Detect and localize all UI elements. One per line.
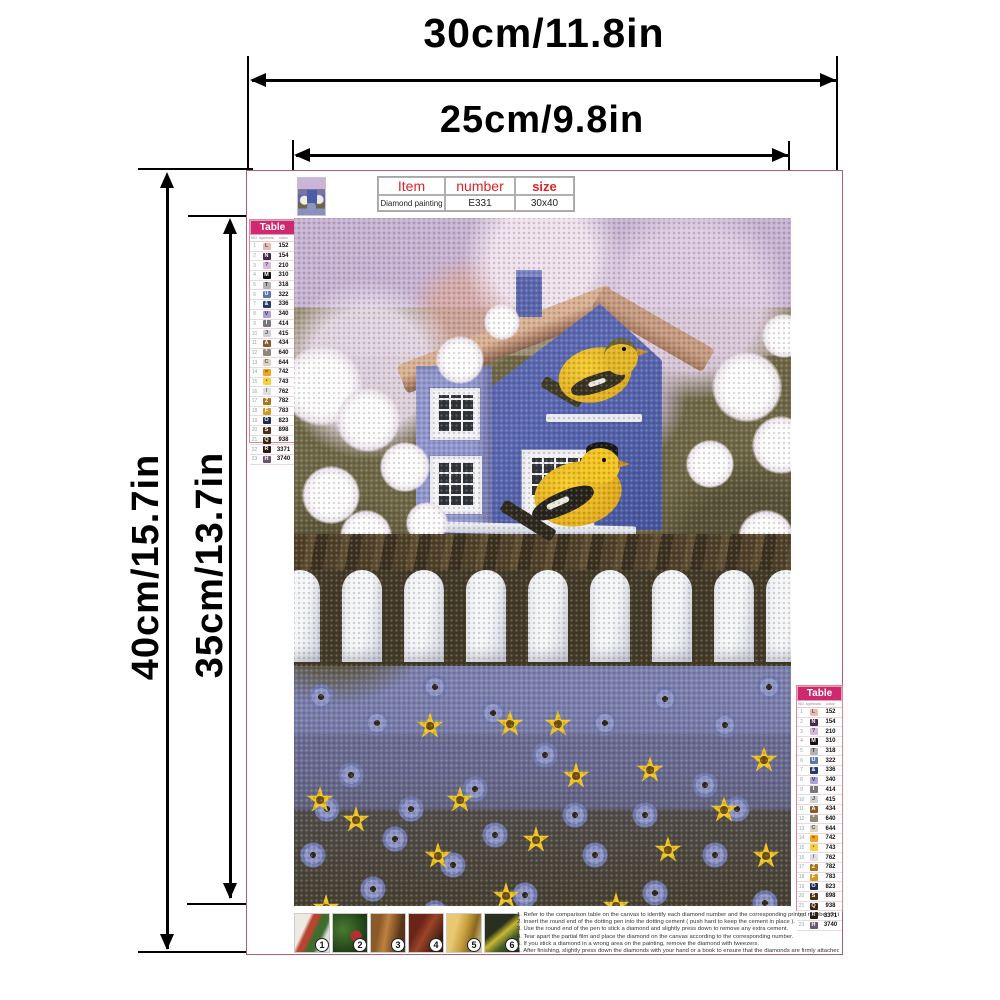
- symbol-chip: •: [263, 378, 271, 385]
- arrowhead-down-icon: [160, 934, 174, 950]
- step-number-badge: 5: [467, 938, 481, 952]
- symbol-chip: N: [263, 253, 271, 260]
- dmc-code: 782: [274, 398, 293, 404]
- instruction-line: 6. After finishing, slightly press down …: [517, 948, 839, 955]
- dmc-code: 783: [821, 874, 840, 880]
- instruction-line: 1. Refer to the comparison table on the …: [517, 912, 839, 919]
- color-table-title: Table: [250, 220, 295, 235]
- row-number: 6: [250, 292, 259, 298]
- dogwood-blossom: [712, 352, 782, 422]
- symbol-chip: R: [263, 446, 271, 453]
- symbol-chip: &: [263, 301, 271, 308]
- row-number: 13: [250, 360, 259, 366]
- product-size-sheet: 30cm/11.8in 25cm/9.8in 40cm/15.7in 35cm/…: [0, 0, 1000, 1000]
- color-table-row: 13C644: [797, 824, 842, 834]
- arrowhead-left-icon: [250, 73, 266, 87]
- step-image-1: 1: [294, 913, 330, 953]
- symbol-chip: J: [810, 796, 818, 803]
- step-images: 123456: [294, 913, 520, 951]
- dmc-code: 823: [274, 418, 293, 424]
- instruction-line: 5. If you stick a diamond in a wrong are…: [517, 941, 839, 948]
- color-table-row: 17Z782: [250, 397, 295, 407]
- row-number: 17: [250, 398, 259, 404]
- symbol-chip: Z: [263, 398, 271, 405]
- step-image-6: 6: [484, 913, 520, 953]
- bird-eye: [622, 347, 626, 351]
- dmc-code: 762: [274, 389, 293, 395]
- arrowhead-left-icon: [294, 148, 310, 162]
- color-table-row: 9I414: [250, 320, 295, 330]
- yellow-flower: [602, 892, 630, 906]
- yellow-flower: [372, 904, 400, 906]
- bird-beak: [637, 348, 649, 356]
- row-number: 20: [797, 893, 806, 899]
- color-table-row: 5T318: [250, 281, 295, 291]
- row-number: 16: [797, 855, 806, 861]
- symbol-chip: /: [810, 854, 818, 861]
- color-table-row: 19O823: [797, 882, 842, 892]
- print-height-label: 35cm/13.7in: [188, 415, 232, 715]
- dmc-code: 340: [821, 777, 840, 783]
- color-table-row: 3?210: [797, 727, 842, 737]
- color-table-row: 1L152: [797, 708, 842, 718]
- purple-aster-flower: [752, 890, 778, 906]
- color-table-row: 18F783: [797, 873, 842, 883]
- purple-aster-flower: [702, 842, 728, 868]
- yellow-flower: [562, 762, 590, 790]
- symbol-chip: I: [263, 320, 271, 327]
- fence-picket: [766, 570, 791, 662]
- color-table-row: 11A434: [250, 339, 295, 349]
- total-height-arrow-line: [166, 177, 169, 949]
- row-number: 9: [797, 787, 806, 793]
- yellow-flower: [312, 894, 340, 906]
- dmc-code: 3371: [274, 447, 293, 453]
- step-number-badge: 1: [315, 938, 329, 952]
- dogwood-blossom: [336, 388, 400, 452]
- total-height-label: 40cm/15.7in: [124, 417, 168, 717]
- row-number: 17: [797, 864, 806, 870]
- dmc-code: 310: [821, 738, 840, 744]
- dmc-code: 310: [274, 272, 293, 278]
- step-image-2: 2: [332, 913, 368, 953]
- total-width-arrow-line: [252, 79, 836, 82]
- yellow-flower: [672, 904, 700, 906]
- color-table-right: Table NO. symbols color 1L1522N1543?2104…: [796, 685, 843, 911]
- color-table-row: 3?210: [250, 261, 295, 271]
- arrowhead-down-icon: [223, 883, 237, 899]
- size-value: 30x40: [515, 195, 574, 211]
- goldfinch-upper: [542, 334, 652, 422]
- row-number: 5: [797, 748, 806, 754]
- symbol-chip: O: [810, 883, 818, 890]
- dmc-code: 640: [274, 350, 293, 356]
- color-table-row: 1L152: [250, 242, 295, 252]
- color-table-row: 11A434: [797, 805, 842, 815]
- arrowhead-up-icon: [223, 218, 237, 234]
- col-color: color: [274, 235, 293, 241]
- dmc-code: 743: [274, 379, 293, 385]
- dmc-code: 434: [821, 806, 840, 812]
- purple-aster-flower: [382, 826, 408, 852]
- purple-aster-flower: [364, 710, 390, 736]
- row-number: 23: [250, 456, 259, 462]
- dmc-code: 336: [821, 767, 840, 773]
- dmc-code: 414: [821, 787, 840, 793]
- symbol-chip: N: [810, 719, 818, 726]
- symbol-chip: U: [810, 757, 818, 764]
- symbol-chip: ?: [263, 262, 271, 269]
- arrowhead-right-icon: [772, 148, 788, 162]
- color-table-columns: NO. symbols color: [250, 235, 295, 242]
- color-table-row: 21Q938: [797, 902, 842, 912]
- col-no: NO.: [250, 235, 259, 241]
- yellow-flower: [522, 826, 550, 854]
- bird-beak: [618, 460, 630, 468]
- symbol-chip: C: [810, 825, 818, 832]
- row-number: 11: [797, 806, 806, 812]
- color-table-row: 14=742: [797, 834, 842, 844]
- color-table-row: 21Q938: [250, 436, 295, 446]
- dmc-code: 152: [274, 243, 293, 249]
- symbol-chip: V: [810, 777, 818, 784]
- symbol-chip: Z: [810, 864, 818, 871]
- purple-aster-flower: [582, 842, 608, 868]
- row-number: 14: [797, 835, 806, 841]
- color-table-row: 10J415: [250, 329, 295, 339]
- color-table-row: 12*640: [250, 349, 295, 359]
- purple-aster-flower: [562, 802, 588, 828]
- bird-head: [604, 338, 638, 375]
- yellow-flower: [654, 836, 682, 864]
- yellow-flower: [342, 806, 370, 834]
- purple-aster-flower: [360, 876, 386, 902]
- row-number: 2: [250, 253, 259, 259]
- window-panes: [437, 395, 473, 433]
- print-width-arrow-line: [296, 154, 788, 157]
- fence-row: [294, 570, 791, 666]
- symbol-chip: H: [263, 456, 271, 463]
- item-info-table: Item number size Diamond painting E331 3…: [377, 176, 575, 212]
- color-table-row: 2N154: [797, 718, 842, 728]
- dmc-code: 434: [274, 340, 293, 346]
- arrowhead-up-icon: [160, 172, 174, 188]
- step-number-badge: 3: [391, 938, 405, 952]
- col-symbols: symbols: [806, 701, 821, 707]
- row-number: 7: [797, 767, 806, 773]
- dogwood-blossom: [484, 304, 520, 340]
- dmc-code: 210: [274, 263, 293, 269]
- symbol-chip: V: [263, 311, 271, 318]
- dogwood-blossom: [436, 336, 484, 384]
- purple-aster-flower: [632, 802, 658, 828]
- row-number: 2: [797, 719, 806, 725]
- row-number: 15: [250, 379, 259, 385]
- number-header: number: [445, 177, 515, 195]
- color-table-row: 4M310: [797, 737, 842, 747]
- color-table-row: 10J415: [797, 795, 842, 805]
- symbol-chip: &: [810, 767, 818, 774]
- instruction-line: 3. Use the round end of the pen to stick…: [517, 926, 839, 933]
- symbol-chip: *: [263, 349, 271, 356]
- fence-picket: [590, 570, 630, 662]
- dmc-code: 898: [274, 427, 293, 433]
- color-table-row: 17Z782: [797, 863, 842, 873]
- row-number: 16: [250, 389, 259, 395]
- dmc-code: 318: [821, 748, 840, 754]
- row-number: 7: [250, 301, 259, 307]
- step-image-5: 5: [446, 913, 482, 953]
- purple-aster-flower: [308, 684, 334, 710]
- fence-picket: [404, 570, 444, 662]
- symbol-chip: M: [263, 272, 271, 279]
- row-number: 18: [797, 874, 806, 880]
- purple-aster-flower: [532, 742, 558, 768]
- color-table-row: 7&336: [797, 766, 842, 776]
- symbol-chip: I: [810, 786, 818, 793]
- dogwood-blossom: [380, 442, 430, 492]
- color-table-row: 12*640: [797, 815, 842, 825]
- symbol-chip: T: [810, 748, 818, 755]
- col-symbols: symbols: [259, 235, 274, 241]
- painting-preview: [294, 218, 791, 906]
- dmc-code: 415: [274, 331, 293, 337]
- item-header: Item: [378, 177, 445, 195]
- row-number: 13: [797, 826, 806, 832]
- dmc-code: 3740: [274, 456, 293, 462]
- color-table-row: 14=742: [250, 368, 295, 378]
- dmc-code: 154: [274, 253, 293, 259]
- color-table-row: 20S898: [250, 426, 295, 436]
- step-number-badge: 4: [429, 938, 443, 952]
- row-number: 12: [797, 816, 806, 822]
- number-value: E331: [445, 195, 515, 211]
- symbol-chip: •: [810, 844, 818, 851]
- purple-aster-flower: [422, 674, 448, 700]
- dmc-code: 318: [274, 282, 293, 288]
- color-table-row: 16/762: [797, 853, 842, 863]
- row-number: 9: [250, 321, 259, 327]
- instruction-line: 2. Insert the round end of the dotting p…: [517, 919, 839, 926]
- dmc-code: 154: [821, 719, 840, 725]
- symbol-chip: S: [263, 427, 271, 434]
- yellow-flower: [636, 756, 664, 784]
- fence-picket: [342, 570, 382, 662]
- row-number: 4: [250, 272, 259, 278]
- color-table-row: 2N154: [250, 252, 295, 262]
- color-table-left: Table NO. symbols color 1L1522N1543?2104…: [249, 219, 296, 443]
- dogwood-blossom: [686, 440, 734, 488]
- color-table-columns: NO. symbols color: [797, 701, 842, 708]
- color-table-row: 23H3740: [250, 455, 295, 465]
- row-number: 19: [250, 418, 259, 424]
- goldfinch-lower: [502, 440, 642, 550]
- dmc-code: 938: [274, 437, 293, 443]
- row-number: 11: [250, 340, 259, 346]
- purple-aster-flower: [692, 772, 718, 798]
- row-number: 21: [250, 437, 259, 443]
- color-table-row: 15•743: [797, 844, 842, 854]
- dmc-code: 742: [821, 835, 840, 841]
- total-width-label: 30cm/11.8in: [294, 10, 794, 57]
- fence-picket: [528, 570, 568, 662]
- color-table-row: 6U322: [797, 756, 842, 766]
- dmc-code: 644: [274, 360, 293, 366]
- symbol-chip: =: [810, 835, 818, 842]
- color-table-title: Table: [797, 686, 842, 701]
- symbol-chip: =: [263, 369, 271, 376]
- col-color: color: [821, 701, 840, 707]
- dmc-code: 898: [821, 893, 840, 899]
- mini-birdhouse: [307, 190, 317, 203]
- purple-aster-flower: [338, 762, 364, 788]
- col-no: NO.: [797, 701, 806, 707]
- bird-eye: [602, 458, 606, 462]
- dmc-code: 782: [821, 864, 840, 870]
- flower-field: [294, 666, 791, 906]
- dmc-code: 742: [274, 369, 293, 375]
- row-number: 6: [797, 758, 806, 764]
- fence-picket: [652, 570, 692, 662]
- dmc-code: 322: [274, 292, 293, 298]
- print-width-label: 25cm/9.8in: [296, 99, 788, 142]
- item-value: Diamond painting: [378, 195, 445, 211]
- purple-aster-flower: [642, 880, 668, 906]
- color-table-row: 22R3371: [250, 445, 295, 455]
- color-table-row: 6U322: [250, 290, 295, 300]
- dmc-code: 743: [821, 845, 840, 851]
- purple-aster-flower: [652, 686, 678, 712]
- fence-picket: [714, 570, 754, 662]
- purple-aster-flower: [422, 900, 448, 906]
- bird-head: [580, 448, 620, 484]
- purple-aster-flower: [592, 710, 618, 736]
- dmc-code: 783: [274, 408, 293, 414]
- color-table-row: 8V340: [250, 310, 295, 320]
- symbol-chip: U: [263, 291, 271, 298]
- color-table-row: 19O823: [250, 416, 295, 426]
- symbol-chip: Q: [810, 903, 818, 910]
- color-table-row: 15•743: [250, 378, 295, 388]
- arrowhead-right-icon: [820, 73, 836, 87]
- row-number: 1: [250, 243, 259, 249]
- yellow-flower: [750, 746, 778, 774]
- row-number: 1: [797, 709, 806, 715]
- row-number: 10: [797, 797, 806, 803]
- row-number: 20: [250, 427, 259, 433]
- dmc-code: 762: [821, 855, 840, 861]
- size-header: size: [515, 177, 574, 195]
- fence-picket: [294, 570, 320, 662]
- symbol-chip: O: [263, 417, 271, 424]
- dmc-code: 336: [274, 301, 293, 307]
- color-table-row: 9I414: [797, 786, 842, 796]
- color-table-row: 8V340: [797, 776, 842, 786]
- step-number-badge: 2: [353, 938, 367, 952]
- step-image-3: 3: [370, 913, 406, 953]
- dogwood-blossom: [752, 416, 791, 474]
- purple-aster-flower: [300, 842, 326, 868]
- dmc-code: 152: [821, 709, 840, 715]
- print-height-arrow-line: [229, 224, 232, 898]
- dogwood-blossom: [762, 314, 791, 358]
- yellow-flower: [544, 710, 572, 738]
- row-number: 8: [250, 311, 259, 317]
- symbol-chip: C: [263, 359, 271, 366]
- color-table-row: 16/762: [250, 387, 295, 397]
- row-number: 3: [797, 729, 806, 735]
- color-table-row: 20S898: [797, 892, 842, 902]
- fence-picket: [466, 570, 506, 662]
- purple-aster-flower: [398, 796, 424, 822]
- row-number: 3: [250, 263, 259, 269]
- instruction-line: 4. Tear apart the partial film and place…: [517, 934, 839, 941]
- row-number: 12: [250, 350, 259, 356]
- row-number: 8: [797, 777, 806, 783]
- yellow-flower: [752, 842, 780, 870]
- dmc-code: 210: [821, 729, 840, 735]
- purple-aster-flower: [756, 674, 782, 700]
- purple-aster-flower: [482, 822, 508, 848]
- dmc-code: 415: [821, 797, 840, 803]
- symbol-chip: M: [810, 738, 818, 745]
- row-number: 21: [797, 903, 806, 909]
- symbol-chip: S: [810, 893, 818, 900]
- mini-preview-image: [297, 177, 326, 216]
- symbol-chip: /: [263, 388, 271, 395]
- row-number: 22: [250, 447, 259, 453]
- row-number: 15: [797, 845, 806, 851]
- dmc-code: 640: [821, 816, 840, 822]
- yellow-flower: [416, 712, 444, 740]
- color-table-row: 18F783: [250, 407, 295, 417]
- color-table-body: 1L1522N1543?2104M3105T3186U3227&3368V340…: [250, 242, 295, 465]
- purple-aster-flower: [712, 712, 738, 738]
- dimension-tick: [138, 168, 253, 170]
- window-panes: [437, 463, 475, 507]
- color-table-row: 5T318: [797, 747, 842, 757]
- step-image-4: 4: [408, 913, 444, 953]
- window-upper: [430, 388, 480, 440]
- canvas-sheet: Item number size Diamond painting E331 3…: [246, 170, 843, 955]
- symbol-chip: J: [263, 330, 271, 337]
- symbol-chip: L: [263, 243, 271, 250]
- chimney: [516, 270, 542, 317]
- row-number: 19: [797, 884, 806, 890]
- color-table-row: 13C644: [250, 358, 295, 368]
- symbol-chip: *: [810, 815, 818, 822]
- symbol-chip: A: [263, 340, 271, 347]
- row-number: 14: [250, 369, 259, 375]
- symbol-chip: F: [810, 874, 818, 881]
- dmc-code: 414: [274, 321, 293, 327]
- dmc-code: 644: [821, 826, 840, 832]
- color-table-row: 7&336: [250, 300, 295, 310]
- color-table-row: 4M310: [250, 271, 295, 281]
- dmc-code: 938: [821, 903, 840, 909]
- row-number: 10: [250, 331, 259, 337]
- symbol-chip: L: [810, 709, 818, 716]
- color-table-body: 1L1522N1543?2104M3105T3186U3227&3368V340…: [797, 708, 842, 931]
- symbol-chip: T: [263, 282, 271, 289]
- instructions: 1. Refer to the comparison table on the …: [517, 912, 839, 956]
- dmc-code: 322: [821, 758, 840, 764]
- dmc-code: 823: [821, 884, 840, 890]
- row-number: 5: [250, 282, 259, 288]
- symbol-chip: ?: [810, 728, 818, 735]
- symbol-chip: Q: [263, 437, 271, 444]
- symbol-chip: F: [263, 408, 271, 415]
